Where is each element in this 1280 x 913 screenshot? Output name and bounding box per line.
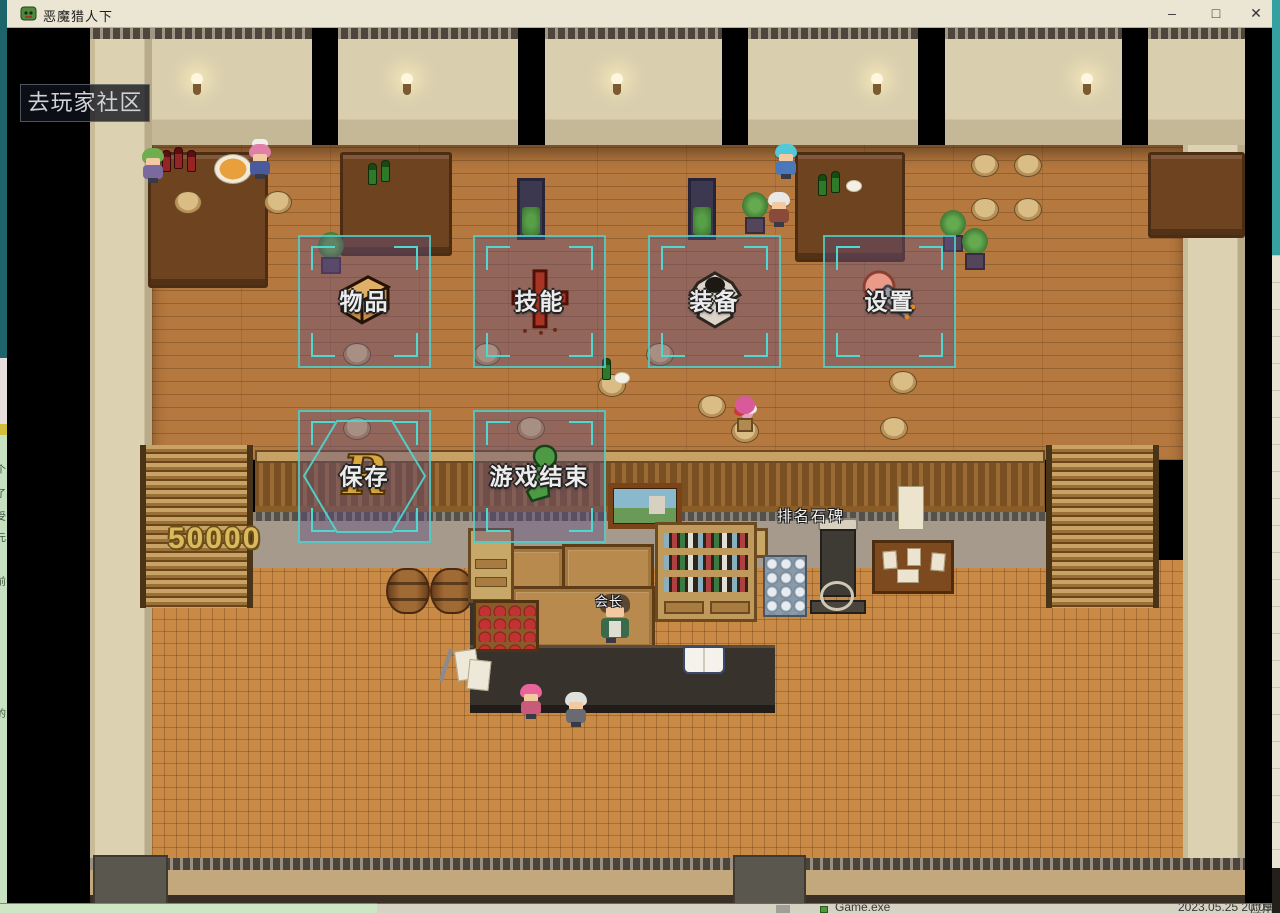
char-body [143, 165, 163, 179]
npc-name-label: 会长 [595, 591, 623, 610]
game-window: 恶魔猎人下 – □ ✕ [7, 0, 1272, 903]
menu-button-label: 保存 [300, 457, 429, 491]
stool [174, 191, 202, 214]
flower-pot-base [737, 418, 753, 432]
stool [971, 154, 999, 177]
npc-cyan-hair [773, 144, 799, 180]
file-row-selection [776, 905, 790, 913]
flower-blossoms [735, 396, 755, 414]
wall-trim [945, 28, 1122, 39]
corner-bracket [569, 333, 593, 357]
corner-bracket [394, 333, 418, 357]
bar-counter [470, 645, 775, 713]
file-list-sliver [1272, 255, 1280, 868]
char-body [769, 209, 789, 223]
monument-ring [820, 581, 854, 611]
stool [264, 191, 292, 214]
wall-lamp [189, 73, 205, 97]
chat-text-fragment: 了 [0, 485, 7, 500]
corner-bracket [311, 333, 335, 357]
barrel-band [388, 582, 428, 585]
doorway-left [93, 855, 168, 903]
wall-pillar [338, 28, 518, 145]
corner-bracket [661, 333, 685, 357]
chat-text-fragment: 个 [0, 461, 7, 476]
board-paper [930, 552, 946, 571]
green-bottle [381, 160, 390, 182]
window-title: 恶魔猎人下 [43, 6, 113, 25]
char-body [250, 161, 270, 175]
plant-pot [965, 253, 985, 270]
monument-label: 排名石碑 [777, 505, 845, 526]
wall-pillar [945, 28, 1122, 145]
stool [880, 417, 908, 440]
barrel-band [388, 598, 428, 601]
menu-button-skills[interactable]: 技能 [473, 235, 606, 368]
game-screen[interactable]: 50000 排名石碑 会长 [7, 28, 1272, 903]
shelf-row [664, 577, 748, 592]
cabinet-drawer [475, 577, 507, 587]
wall-notice [898, 486, 924, 530]
char-legs [606, 638, 616, 643]
char-legs [148, 178, 158, 183]
desktop-sliver-right-teal [1272, 0, 1280, 255]
stool [889, 371, 917, 394]
plant-leaves [742, 192, 768, 219]
menu-button-label: 物品 [300, 282, 429, 316]
corner-bracket [394, 508, 418, 532]
scroll-stack [763, 555, 807, 617]
npc-green-hair [140, 148, 166, 184]
lamp-base [613, 84, 621, 95]
window-plant [517, 178, 545, 240]
wall-trim [748, 28, 918, 39]
corner-bracket [744, 333, 768, 357]
stool [971, 198, 999, 221]
wall-trim [90, 858, 1245, 870]
char-legs [255, 174, 265, 179]
file-explorer-row-sliver: Game.exe 2023.05.25 20:09 应用程序 [377, 903, 1272, 913]
wall-trim [90, 28, 152, 39]
barrel-band [432, 598, 472, 601]
chat-window-bottom-sliver [0, 903, 377, 913]
menu-button-label: 技能 [475, 282, 604, 316]
plant-pot [745, 217, 765, 234]
wall-pillar [748, 28, 918, 145]
close-button[interactable]: ✕ [1239, 0, 1273, 27]
char-body [566, 709, 586, 723]
green-bottle [818, 174, 827, 196]
desktop-sliver-left-highlight [0, 424, 7, 435]
wall-trim [338, 28, 518, 39]
wall-lamp [399, 73, 415, 97]
doorway-center [733, 855, 806, 903]
bottle-shelf [655, 522, 757, 622]
bottom-wall [90, 858, 1245, 903]
chat-text-fragment: 前 [0, 573, 7, 588]
menu-button-game-end[interactable]: 游戏结束 [473, 410, 606, 543]
char-legs [571, 722, 581, 727]
wall-lamp [869, 73, 885, 97]
barrel [386, 568, 430, 614]
board-paper [882, 551, 897, 570]
counter-papers [442, 642, 496, 704]
menu-button-label: 设置 [825, 282, 954, 316]
minimize-button[interactable]: – [1155, 0, 1189, 27]
wall-trim [152, 28, 312, 39]
file-type: 应用程序 [1250, 903, 1272, 913]
wall-trim [1148, 28, 1245, 39]
lamp-base [403, 84, 411, 95]
shelf-row [664, 555, 748, 570]
plate [846, 180, 862, 192]
cabinet-drawer [475, 559, 507, 569]
wall-trim [545, 28, 722, 39]
menu-button-save[interactable]: R 保存 [298, 410, 431, 543]
gold-amount: 50000 [168, 522, 261, 556]
corner-bracket [569, 508, 593, 532]
char-body [521, 701, 541, 715]
bulletin-board[interactable] [872, 540, 954, 594]
wall-pillar [1148, 28, 1245, 145]
board-paper [907, 548, 921, 566]
menu-button-settings[interactable]: 设置 [823, 235, 956, 368]
screen: 个 了 受 元 前 的 Game.exe 2023.05.25 20:09 应用… [0, 0, 1280, 913]
npc-pink-hair-small [518, 684, 544, 720]
plant-leaves [522, 207, 540, 235]
char-legs [781, 174, 791, 179]
corner-bracket [836, 333, 860, 357]
char-legs [526, 714, 536, 719]
stool [1014, 154, 1042, 177]
char-apron [609, 621, 621, 637]
plate [614, 372, 630, 384]
menu-button-items[interactable]: 物品 [298, 235, 431, 368]
window-titlebar[interactable]: 恶魔猎人下 – □ ✕ [7, 0, 1272, 28]
shelf-row [664, 533, 748, 548]
chat-text-fragment: 的 [0, 705, 7, 720]
corner-bracket [919, 333, 943, 357]
green-bottle [831, 171, 840, 193]
chat-text-fragment: 元 [0, 529, 7, 544]
plant-leaves [693, 207, 711, 235]
barrel-band [432, 582, 472, 585]
maximize-button[interactable]: □ [1199, 0, 1233, 27]
game-exe-icon [820, 906, 828, 913]
stairs-right [1046, 445, 1159, 608]
flower-pot [733, 396, 757, 432]
green-bottle [368, 163, 377, 185]
painting-castle [649, 496, 665, 514]
menu-button-equipment[interactable]: 装备 [648, 235, 781, 368]
corner-bracket [486, 508, 510, 532]
wine-bottle [187, 150, 196, 172]
char-legs [774, 222, 784, 227]
tavern-map: 50000 排名石碑 会长 [90, 28, 1245, 903]
ranking-monument[interactable] [810, 518, 866, 614]
shelf-drawer [664, 601, 704, 614]
desktop-sliver-left-teal [0, 0, 7, 358]
corner-bracket [311, 508, 335, 532]
menu-button-label: 装备 [650, 282, 779, 316]
chat-text-fragment: 受 [0, 508, 7, 523]
lamp-base [1083, 84, 1091, 95]
wall-pillar [152, 28, 312, 145]
board-paper [897, 569, 919, 583]
plant-leaves [962, 228, 988, 255]
lamp-base [873, 84, 881, 95]
wall-lamp [609, 73, 625, 97]
wall-lamp [1079, 73, 1095, 97]
open-book [683, 646, 725, 674]
dining-table [1148, 152, 1245, 238]
lamp-base [193, 84, 201, 95]
wall-pillar [545, 28, 722, 145]
npc-white-hair [766, 192, 792, 228]
stool [1014, 198, 1042, 221]
shelf-drawer [710, 601, 750, 614]
app-icon [20, 5, 37, 22]
desktop-sliver-right-dark [1272, 868, 1280, 913]
player-community-button[interactable]: 去玩家社区 [20, 84, 150, 122]
menu-button-label: 游戏结束 [475, 457, 604, 491]
potted-plant [742, 192, 768, 234]
npc-white-hair-small [563, 692, 589, 728]
chat-window-sliver: 个 了 受 元 前 的 [0, 435, 7, 913]
window-plant [688, 178, 716, 240]
paper-sheet [466, 659, 491, 691]
wall-base [90, 895, 1245, 903]
char-body [776, 161, 796, 175]
desktop-sliver-left-window [0, 358, 7, 424]
potted-plant [962, 228, 988, 270]
wine-bottle [174, 147, 183, 169]
corner-bracket [486, 333, 510, 357]
npc-pink-chef [247, 144, 273, 180]
stool [698, 395, 726, 418]
wooden-crate [562, 544, 654, 592]
file-name: Game.exe [835, 903, 890, 913]
